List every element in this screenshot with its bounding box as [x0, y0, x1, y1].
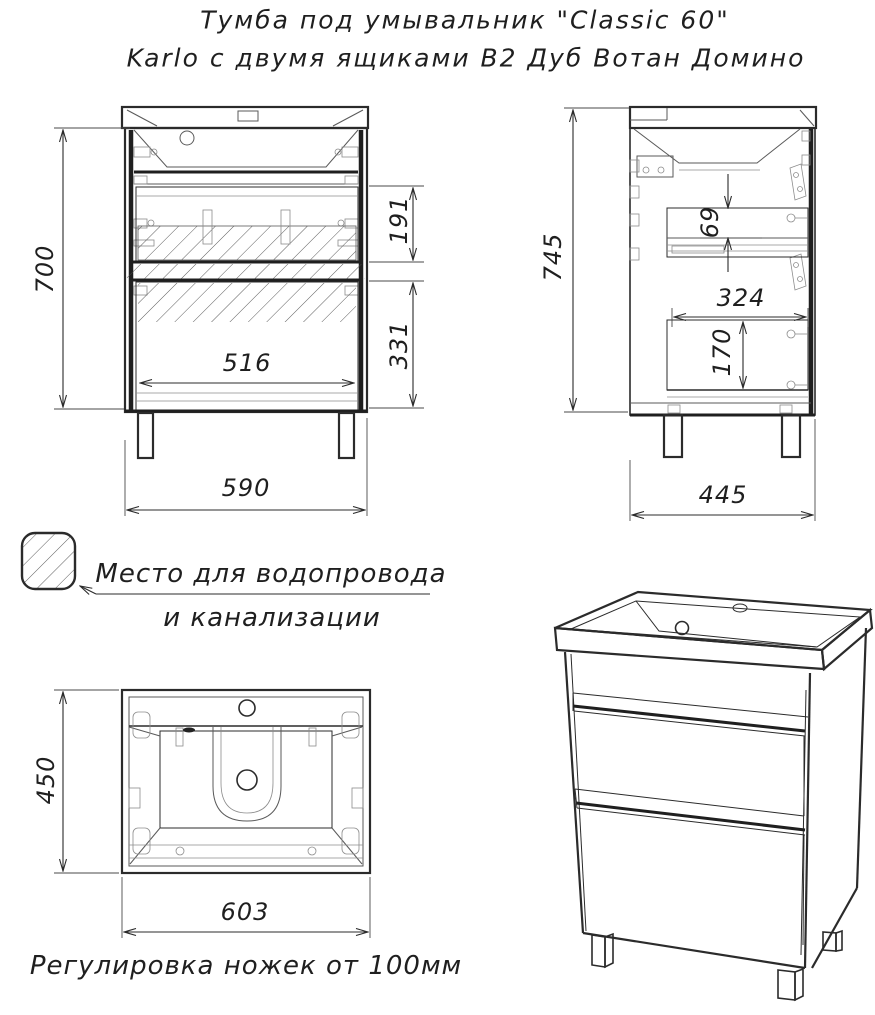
- overflow-outline: [213, 727, 281, 821]
- front-right-leg: [339, 413, 354, 458]
- side-inner-depth-dim-label: 324: [717, 286, 766, 310]
- side-depth-dim-label: 445: [699, 483, 748, 507]
- top-depth-dim-label: 450: [34, 756, 58, 805]
- drain-hole: [237, 770, 257, 790]
- drain-hole-3d: [676, 622, 689, 635]
- perspective-view: [555, 592, 872, 1000]
- front-drawer2-dim-label: 331: [387, 321, 411, 370]
- side-view: [564, 107, 816, 521]
- side-drawer-inner-dim-label: 170: [710, 328, 734, 377]
- side-back-leg: [782, 415, 800, 457]
- front-view: [54, 107, 424, 516]
- leg-3d-front-left: [592, 935, 605, 967]
- legend-text-line1: Место для водопровода: [95, 561, 446, 587]
- side-front-leg: [664, 415, 682, 457]
- side-height-dim-label: 745: [541, 233, 565, 282]
- leg-3d-front-right: [778, 970, 795, 1000]
- top-view: [54, 690, 370, 938]
- front-height-dim-label: 700: [33, 245, 57, 294]
- drawing-title-line2: Karlo с двумя ящиками В2 Дуб Вотан Домин…: [127, 46, 806, 71]
- legend-text-line2: и канализации: [163, 605, 381, 631]
- top-width-dim-label: 603: [221, 900, 270, 924]
- front-inner-width-dim-label: 516: [223, 351, 272, 375]
- technical-drawing-sheet: Тумба под умывальник "Classic 60" Karlo …: [0, 0, 875, 1015]
- legs-adjustment-note: Регулировка ножек от 100мм: [30, 953, 462, 979]
- front-width-dim-label: 590: [222, 476, 271, 500]
- drawing-title-line1: Тумба под умывальник "Classic 60": [200, 8, 730, 33]
- faucet-hole: [239, 700, 255, 716]
- side-rail-offset-dim-label: 69: [698, 206, 722, 239]
- front-drawer1-dim-label: 191: [387, 196, 411, 245]
- front-left-leg: [138, 413, 153, 458]
